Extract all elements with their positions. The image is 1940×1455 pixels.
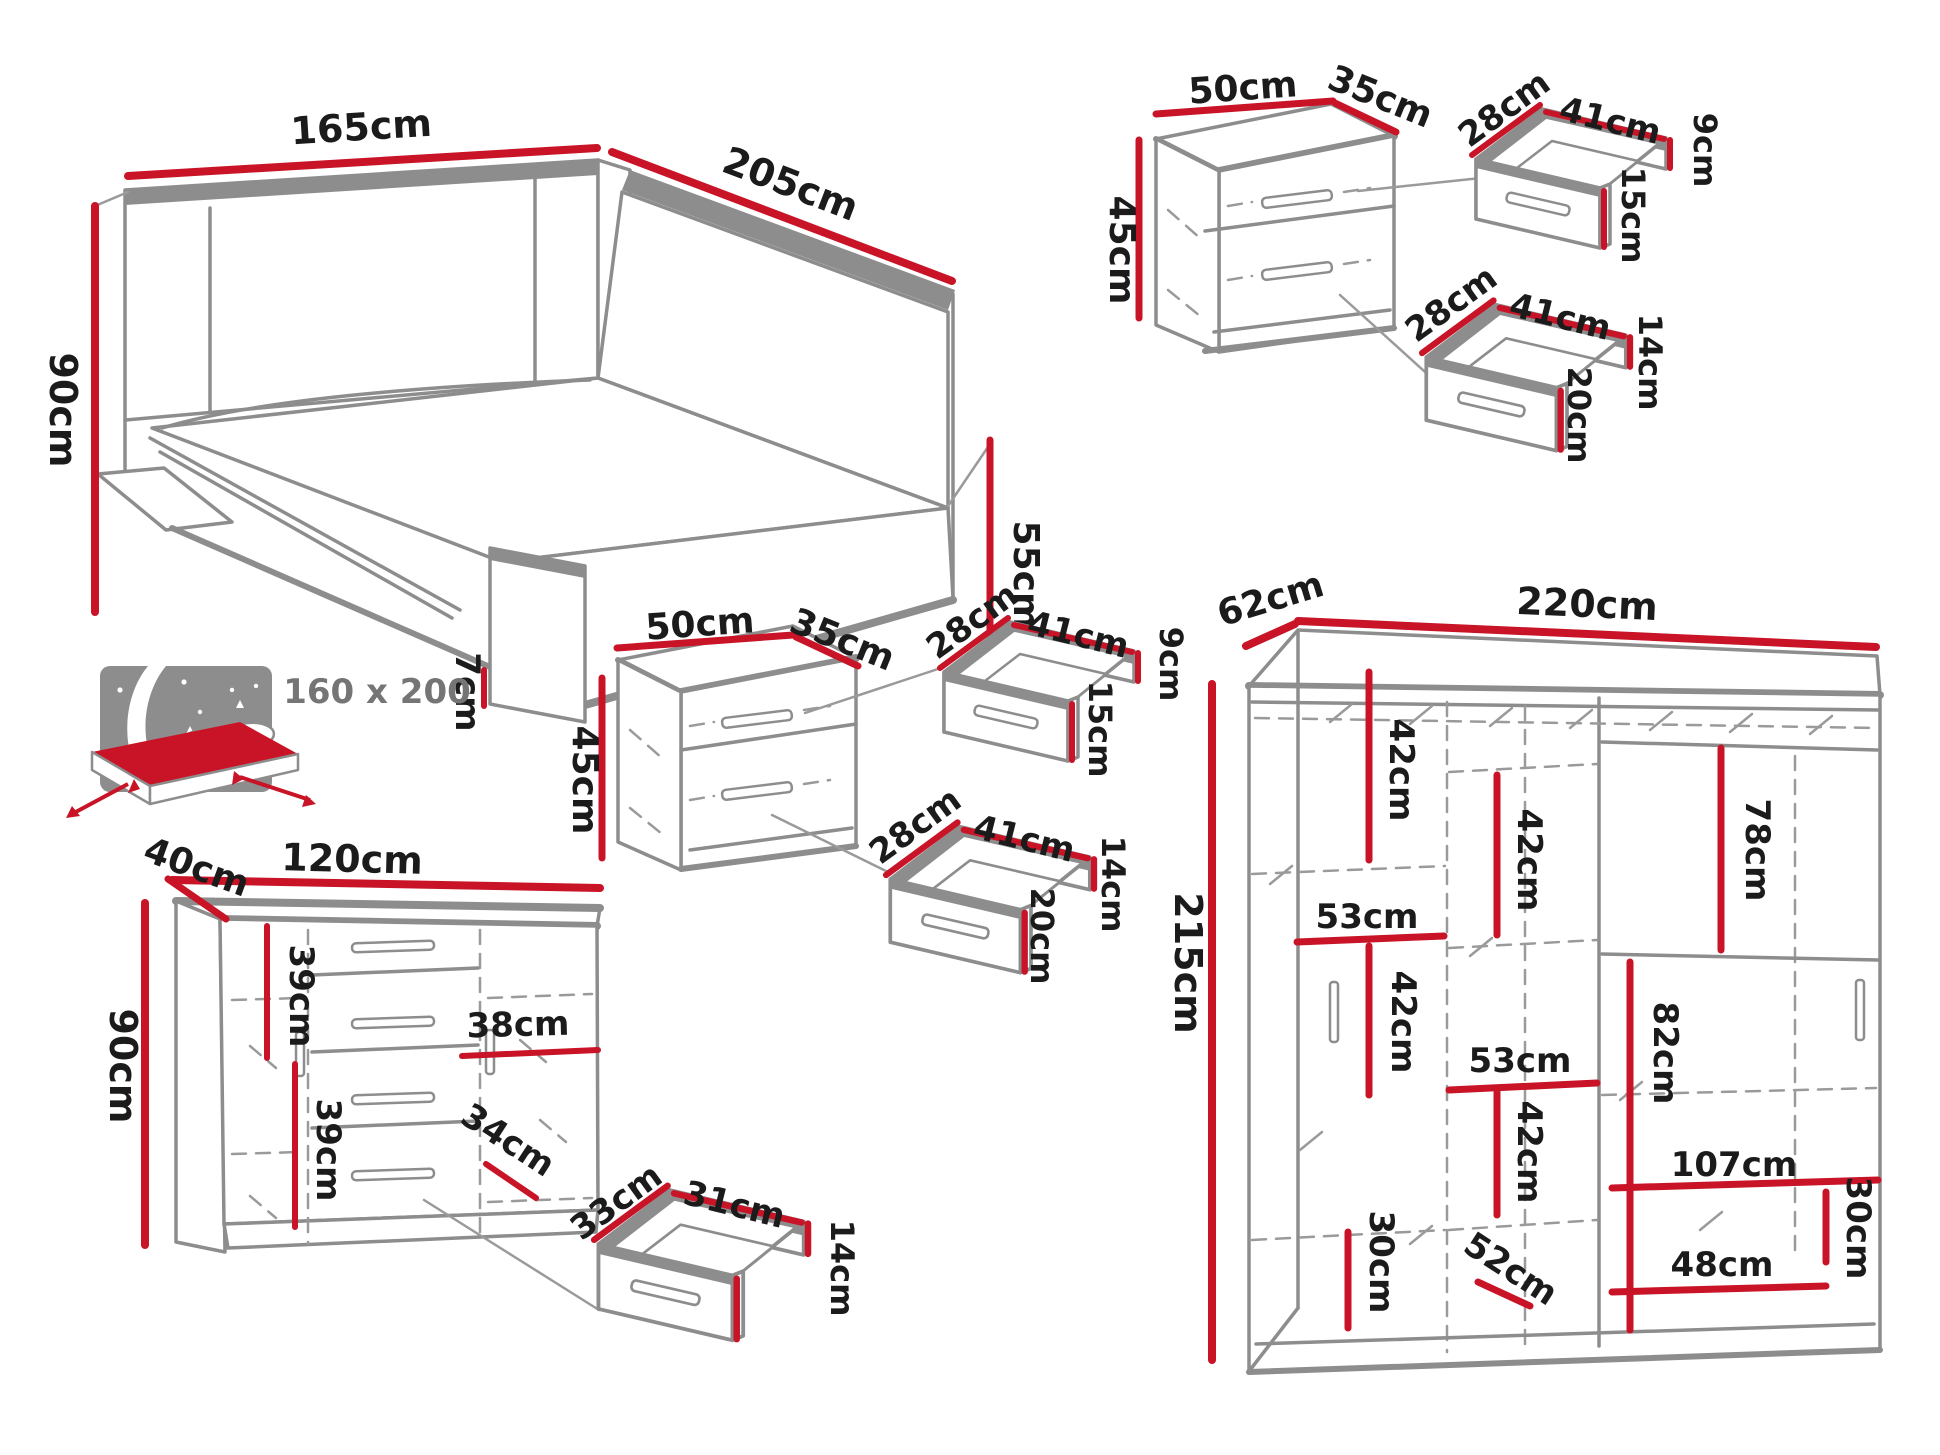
diagram-canvas: 165cm 205cm 90cm 55cm 7cm 160 x 200 xyxy=(0,0,1940,1455)
wardrobe-right-top-label: 78cm xyxy=(1737,799,1777,902)
drawer-back-height-label: 9cm xyxy=(1686,113,1724,188)
door-handle xyxy=(1330,982,1338,1042)
dresser-side-face xyxy=(176,901,225,1252)
drawer-handle xyxy=(352,941,434,953)
wardrobe-center-width-label: 53cm xyxy=(1469,1041,1572,1081)
dresser-drawer-width-label: 38cm xyxy=(466,1004,570,1047)
wardrobe-center-top-label: 42cm xyxy=(1509,809,1549,912)
wardrobe-right-bottom-label: 30cm xyxy=(1838,1177,1878,1280)
nightstand-height-label: 45cm xyxy=(1101,196,1142,305)
drawer-back-height-label: 9cm xyxy=(1152,627,1190,702)
wardrobe-width-label: 220cm xyxy=(1516,579,1659,629)
dresser-drawer-group: 33cm 31cm 14cm xyxy=(563,1156,861,1340)
wardrobe-center-bottom-label: 42cm xyxy=(1509,1101,1549,1204)
nightstand-width-label: 50cm xyxy=(644,600,756,649)
bed-size-icon: 160 x 200 xyxy=(66,666,471,818)
dresser-depth-label: 40cm xyxy=(138,830,254,906)
wardrobe-left-top-label: 42cm xyxy=(1381,719,1421,822)
drawer-front-height-label: 20cm xyxy=(1560,367,1598,464)
bed-left-leg xyxy=(98,468,232,530)
wardrobe-left-bottom-label: 30cm xyxy=(1361,1211,1401,1314)
wardrobe-right-middle-label: 82cm xyxy=(1645,1002,1685,1105)
nightstand-width-label: 50cm xyxy=(1187,64,1299,113)
wardrobe-height-label: 215cm xyxy=(1166,892,1210,1033)
drawer-front-height-label: 15cm xyxy=(1614,167,1652,264)
dresser-group: 40cm 120cm 90cm 39cm 39cm 38cm 34cm xyxy=(101,830,600,1310)
drawer-back-height-label: 14cm xyxy=(1631,314,1669,411)
drawer-handle xyxy=(352,1017,434,1029)
drawer-large-middle: 28cm 41cm 14cm 20cm xyxy=(862,780,1132,985)
wardrobe-bottom-shelf-label: 48cm xyxy=(1671,1245,1774,1285)
furniture-dimensions-diagram: 165cm 205cm 90cm 55cm 7cm 160 x 200 xyxy=(0,0,1940,1455)
mattress-size-label: 160 x 200 xyxy=(283,672,471,712)
nightstand-height-label: 45cm xyxy=(564,726,605,835)
dresser-height-label: 90cm xyxy=(101,1008,145,1123)
wardrobe-front-face xyxy=(1249,686,1880,1372)
drawer-front-height-label: 20cm xyxy=(1023,888,1061,985)
wardrobe-group: 62cm 220cm 215cm 42cm 53cm 42cm 30cm 42c… xyxy=(1166,564,1880,1372)
bed-group: 165cm 205cm 90cm 55cm 7cm xyxy=(41,101,1046,732)
door-handle xyxy=(1856,980,1864,1040)
nightstand-side-face xyxy=(618,660,681,870)
bed-height-label: 90cm xyxy=(41,352,85,467)
wardrobe-left-middle-label: 42cm xyxy=(1383,971,1423,1074)
drawer-front-height-label: 15cm xyxy=(1081,681,1119,778)
wardrobe-shelf-width-label: 107cm xyxy=(1671,1145,1798,1185)
drawer-small-top-right: 28cm 41cm 9cm 15cm xyxy=(1451,63,1724,264)
bed-width-label: 165cm xyxy=(289,101,433,154)
drawer-handle xyxy=(352,1169,434,1181)
nightstand-side-face xyxy=(1156,139,1219,352)
dresser-width-label: 120cm xyxy=(281,835,424,883)
wardrobe-left-width-label: 53cm xyxy=(1316,897,1419,937)
drawer-height-label: 14cm xyxy=(823,1220,861,1317)
dresser-upper-section-label: 39cm xyxy=(281,945,321,1048)
drawer-handle xyxy=(352,1093,434,1105)
drawer-small-middle: 28cm 41cm 9cm 15cm xyxy=(919,575,1190,778)
drawer-large-top-right: 28cm 41cm 14cm 20cm xyxy=(1398,258,1669,464)
drawer-back-height-label: 14cm xyxy=(1094,836,1132,933)
dresser-lower-section-label: 39cm xyxy=(308,1099,348,1202)
